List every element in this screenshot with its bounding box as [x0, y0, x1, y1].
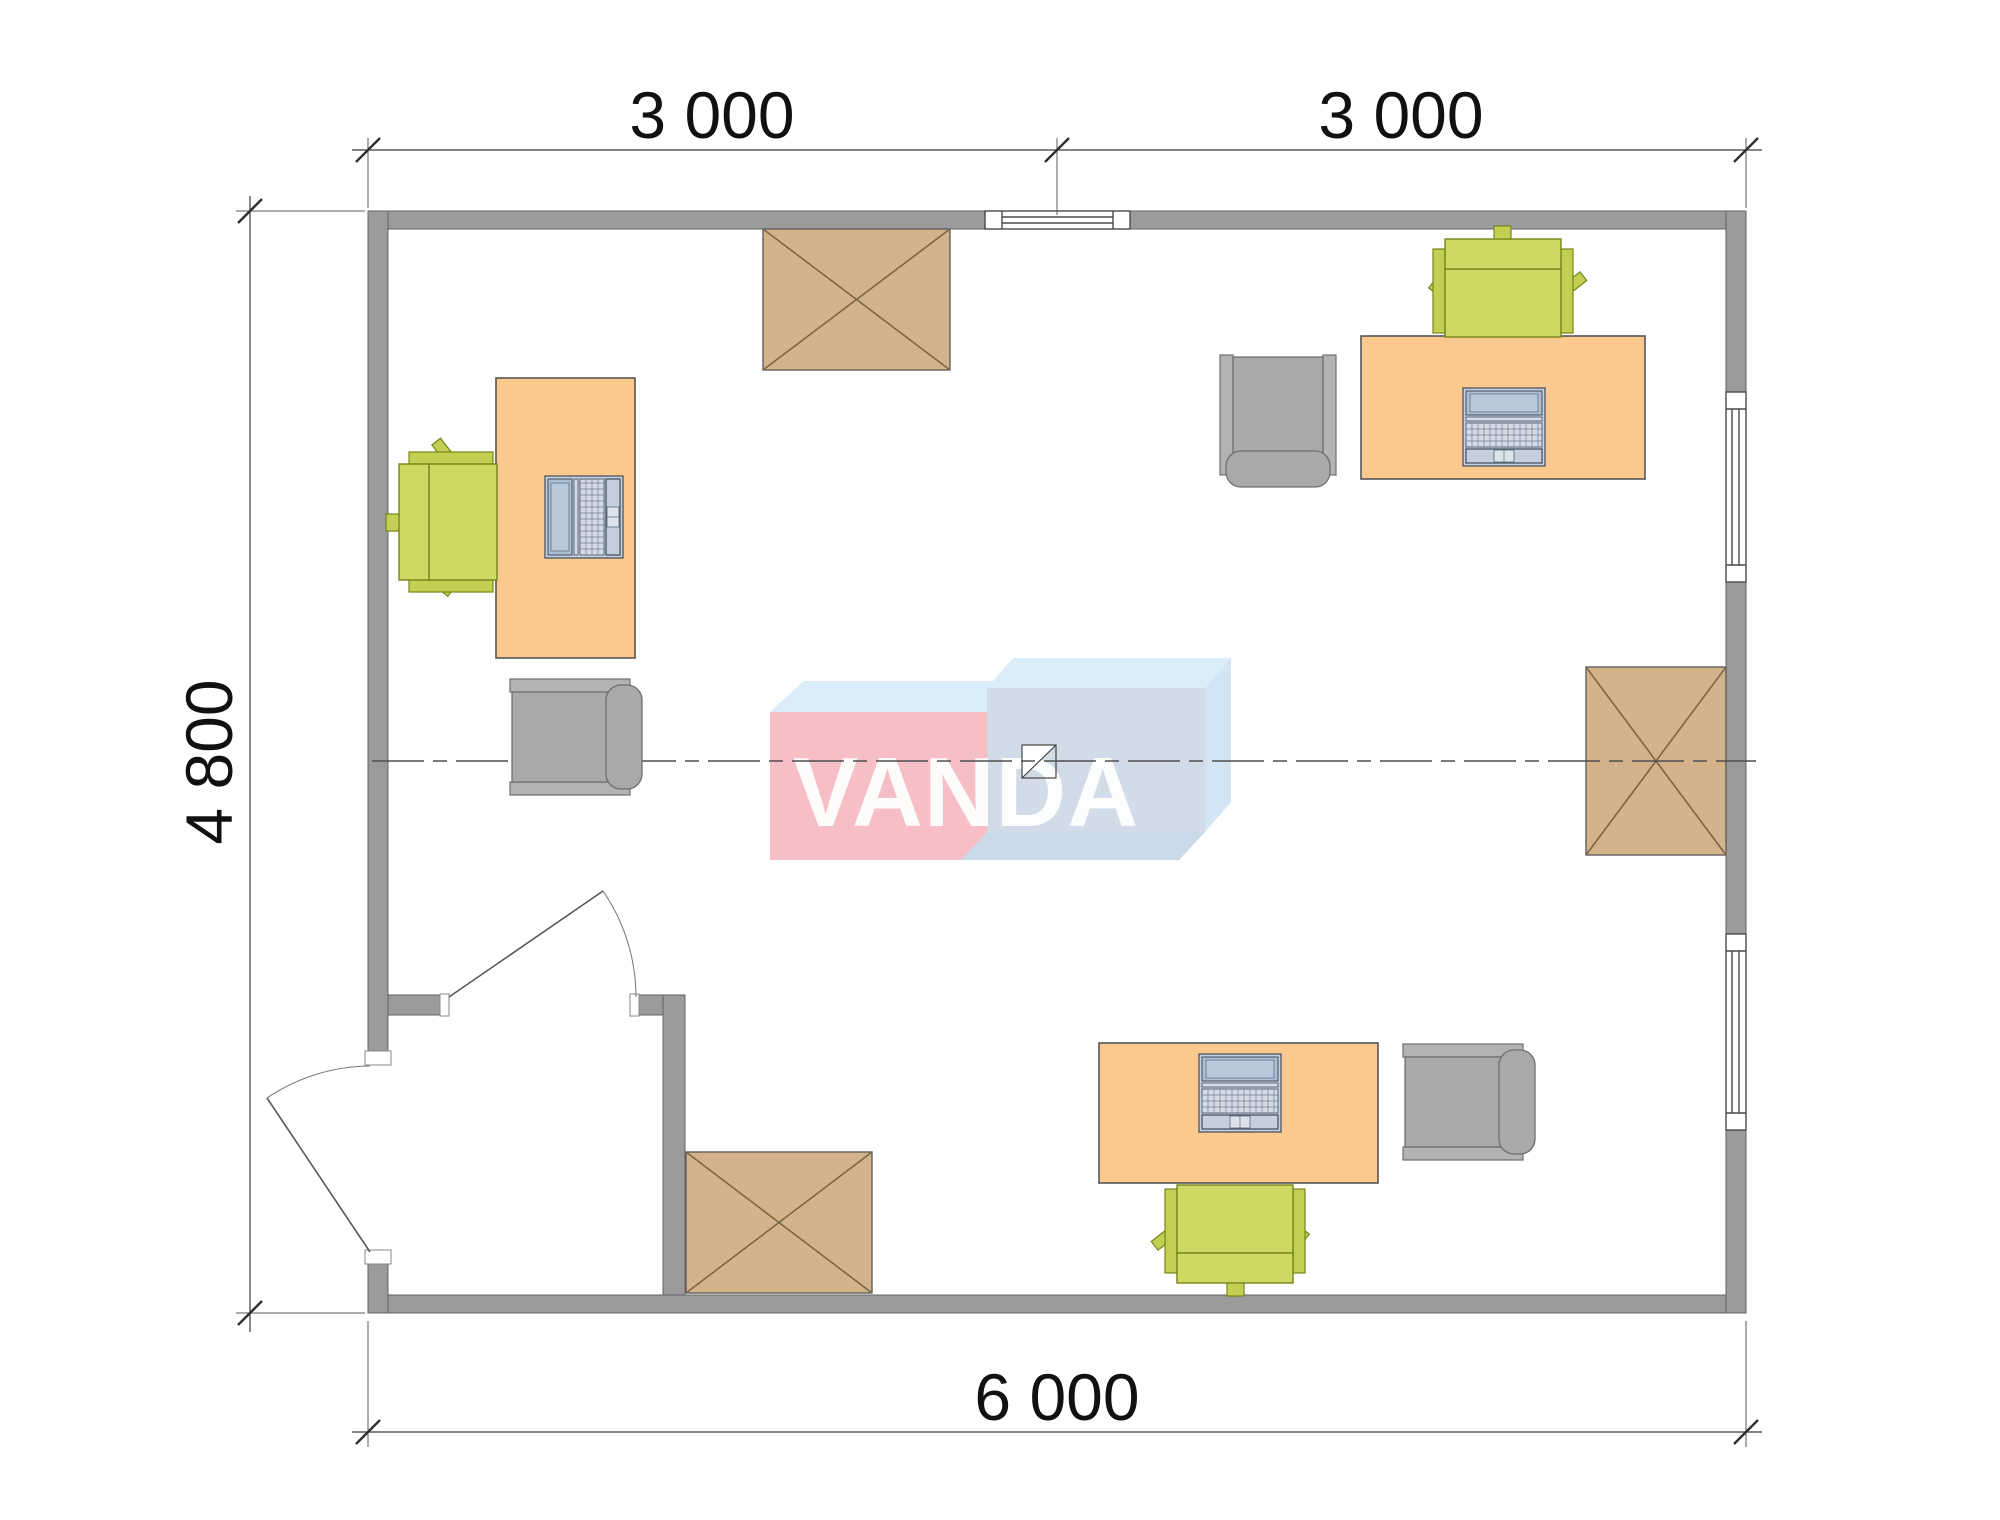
floor-plan-page: VANDA [0, 0, 2000, 1520]
workstation-left [386, 378, 642, 795]
dimension-left: 4 800 [172, 196, 365, 1332]
workstation-top-right [1220, 226, 1645, 487]
dim-label-left: 4 800 [172, 679, 246, 844]
green-chair-top-right [1429, 226, 1587, 337]
green-chair-left [386, 438, 497, 596]
vanda-logo-watermark: VANDA [770, 658, 1231, 860]
workstation-bottom [1099, 1043, 1535, 1296]
gray-chair-left [510, 679, 642, 795]
interior-door [440, 891, 639, 1017]
wall-bottom [368, 1295, 1746, 1313]
window-right-upper [1724, 392, 1748, 582]
gray-chair-top-right [1220, 355, 1336, 487]
wall-vestibule-vertical [663, 995, 685, 1295]
logo-blue-box-side-face [1205, 658, 1231, 832]
laptop-left [545, 476, 623, 558]
logo-pink-box-top-face [770, 681, 1021, 712]
dim-label-bottom: 6 000 [974, 1360, 1139, 1434]
window-right-lower [1724, 934, 1748, 1130]
dimension-bottom: 6 000 [352, 1321, 1762, 1447]
dim-label-top-right: 3 000 [1318, 78, 1483, 152]
dimension-top: 3 000 3 000 [352, 78, 1762, 215]
dim-label-top-left: 3 000 [629, 78, 794, 152]
logo-wordmark: VANDA [793, 737, 1139, 847]
laptop-top-right [1463, 388, 1545, 466]
floor-plan-canvas: VANDA [0, 0, 2000, 1520]
cabinet-top [763, 229, 950, 370]
logo-blue-box-top-face [987, 658, 1231, 688]
wall-right [1726, 211, 1746, 1313]
laptop-bottom [1199, 1054, 1281, 1132]
cabinet-bottom [686, 1152, 872, 1293]
exterior-door [267, 1051, 391, 1264]
gray-chair-bottom [1403, 1044, 1535, 1160]
doors [267, 891, 639, 1264]
green-chair-bottom [1151, 1185, 1309, 1296]
